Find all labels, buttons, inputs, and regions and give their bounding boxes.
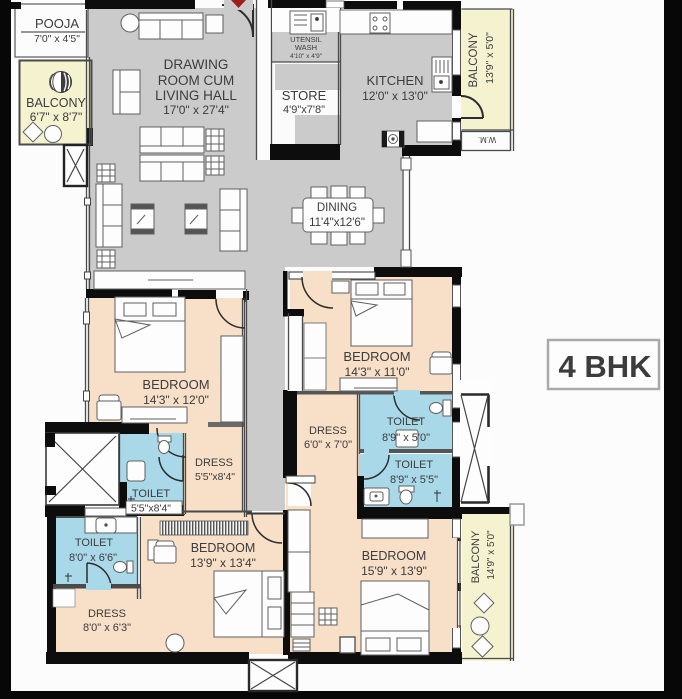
svg-text:LIVING HALL: LIVING HALL bbox=[155, 88, 237, 103]
svg-text:14'3" x 11'0": 14'3" x 11'0" bbox=[345, 365, 410, 379]
svg-text:DRESS: DRESS bbox=[88, 608, 126, 620]
svg-text:DRAWING: DRAWING bbox=[164, 57, 229, 72]
svg-text:4'9"x7'8": 4'9"x7'8" bbox=[283, 104, 325, 116]
svg-text:12'0" x 13'0": 12'0" x 13'0" bbox=[362, 89, 428, 103]
svg-text:6'7" x 8'7": 6'7" x 8'7" bbox=[30, 110, 82, 124]
svg-text:WASH: WASH bbox=[295, 43, 317, 52]
svg-text:14'3" x 12'0": 14'3" x 12'0" bbox=[143, 393, 209, 407]
svg-text:BEDROOM: BEDROOM bbox=[362, 549, 427, 563]
svg-text:8'0" x 6'6": 8'0" x 6'6" bbox=[69, 552, 117, 564]
svg-text:4'10" x 4'9": 4'10" x 4'9" bbox=[290, 53, 323, 60]
svg-text:TOILET: TOILET bbox=[75, 537, 114, 549]
svg-text:17'0" x 27'4": 17'0" x 27'4" bbox=[163, 103, 229, 117]
svg-text:14'9" x 5'0": 14'9" x 5'0" bbox=[486, 530, 497, 580]
svg-text:5'5"x8'4": 5'5"x8'4" bbox=[131, 503, 171, 515]
svg-text:8'9" x 5'0": 8'9" x 5'0" bbox=[382, 432, 430, 444]
svg-text:15'9" x 13'9": 15'9" x 13'9" bbox=[361, 564, 427, 578]
svg-text:TOILET: TOILET bbox=[395, 459, 434, 471]
svg-text:13'9" x 13'4": 13'9" x 13'4" bbox=[190, 556, 256, 570]
svg-text:13'9" x 5'0": 13'9" x 5'0" bbox=[484, 32, 496, 84]
svg-text:8'0" x 6'3": 8'0" x 6'3" bbox=[83, 622, 131, 634]
svg-text:BEDROOM: BEDROOM bbox=[343, 349, 410, 364]
svg-text:5'5"x8'4": 5'5"x8'4" bbox=[195, 471, 235, 483]
svg-text:BALCONY: BALCONY bbox=[26, 96, 86, 110]
svg-text:4 BHK: 4 BHK bbox=[558, 349, 652, 384]
svg-text:STORE: STORE bbox=[282, 88, 327, 103]
svg-text:6'0" x 7'0": 6'0" x 7'0" bbox=[304, 439, 352, 451]
svg-text:BEDROOM: BEDROOM bbox=[142, 377, 209, 392]
svg-text:W.M.: W.M. bbox=[478, 135, 496, 144]
svg-text:KITCHEN: KITCHEN bbox=[366, 73, 423, 88]
svg-text:BALCONY: BALCONY bbox=[468, 32, 480, 87]
svg-text:POOJA: POOJA bbox=[35, 16, 79, 31]
svg-text:11'4"x12'6": 11'4"x12'6" bbox=[309, 217, 365, 229]
svg-text:DRESS: DRESS bbox=[309, 425, 347, 437]
svg-text:ROOM CUM: ROOM CUM bbox=[158, 73, 235, 88]
svg-text:TOILET: TOILET bbox=[132, 488, 171, 500]
svg-text:DINING: DINING bbox=[317, 202, 357, 214]
svg-text:8'9" x 5'5": 8'9" x 5'5" bbox=[390, 474, 438, 486]
svg-text:DRESS: DRESS bbox=[195, 457, 233, 469]
svg-text:TOILET: TOILET bbox=[387, 416, 426, 428]
svg-text:BEDROOM: BEDROOM bbox=[191, 541, 256, 555]
svg-text:BALCONY: BALCONY bbox=[470, 530, 482, 583]
svg-text:7'0" x 4'5": 7'0" x 4'5" bbox=[34, 33, 80, 45]
